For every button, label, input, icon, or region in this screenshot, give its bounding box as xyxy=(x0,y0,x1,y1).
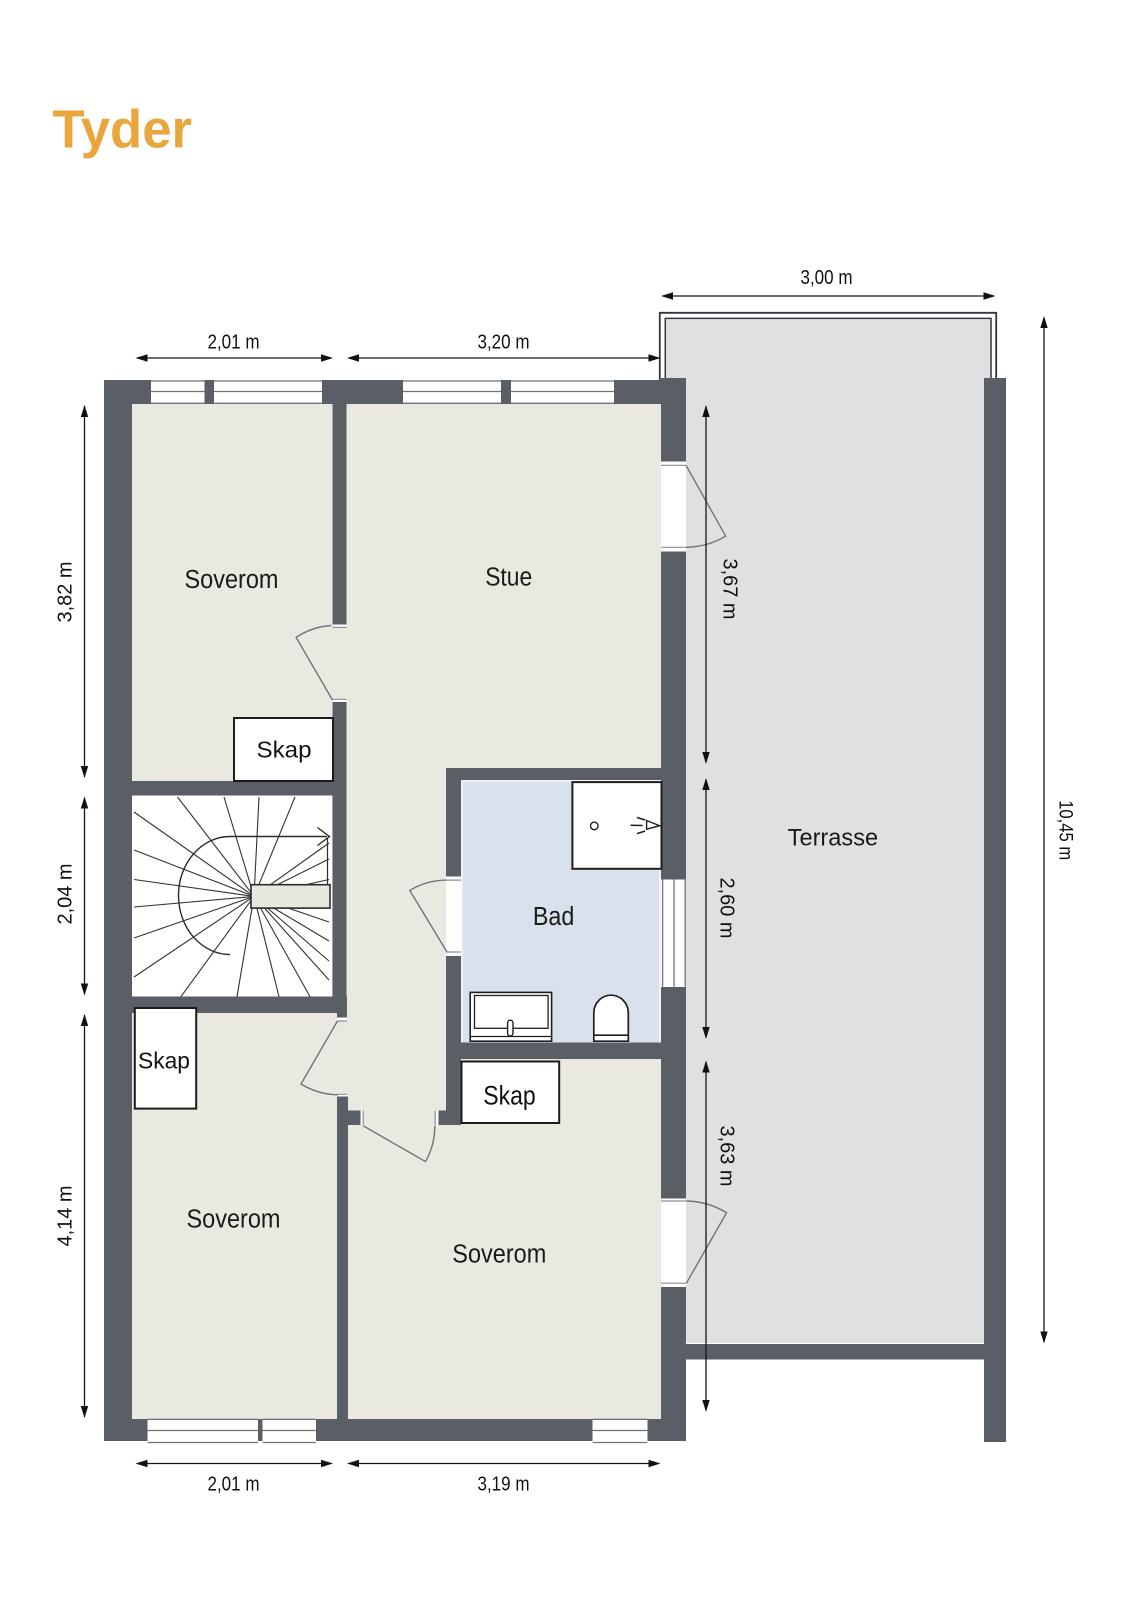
svg-text:Skap: Skap xyxy=(138,1048,190,1074)
svg-text:Terrasse: Terrasse xyxy=(788,824,879,851)
svg-text:Bad: Bad xyxy=(533,903,575,931)
svg-text:2,60 m: 2,60 m xyxy=(716,878,738,939)
svg-text:Skap: Skap xyxy=(483,1080,536,1110)
svg-text:3,19 m: 3,19 m xyxy=(478,1473,530,1495)
svg-text:3,82 m: 3,82 m xyxy=(55,562,77,623)
svg-text:Stue: Stue xyxy=(485,564,532,592)
svg-text:2,01 m: 2,01 m xyxy=(208,331,260,353)
svg-text:Tyder: Tyder xyxy=(53,99,193,159)
svg-text:3,00 m: 3,00 m xyxy=(801,267,853,289)
svg-text:3,67 m: 3,67 m xyxy=(719,559,741,620)
svg-text:10,45 m: 10,45 m xyxy=(1055,800,1076,860)
svg-text:3,20 m: 3,20 m xyxy=(478,331,530,353)
svg-text:2,04 m: 2,04 m xyxy=(55,864,77,925)
svg-text:4,14 m: 4,14 m xyxy=(55,1186,77,1247)
svg-text:Soverom: Soverom xyxy=(187,1206,281,1234)
svg-text:2,01 m: 2,01 m xyxy=(208,1473,260,1495)
svg-text:Skap: Skap xyxy=(257,736,312,762)
svg-text:3,63 m: 3,63 m xyxy=(716,1126,738,1187)
svg-text:Soverom: Soverom xyxy=(185,566,279,594)
svg-text:Soverom: Soverom xyxy=(452,1241,546,1269)
